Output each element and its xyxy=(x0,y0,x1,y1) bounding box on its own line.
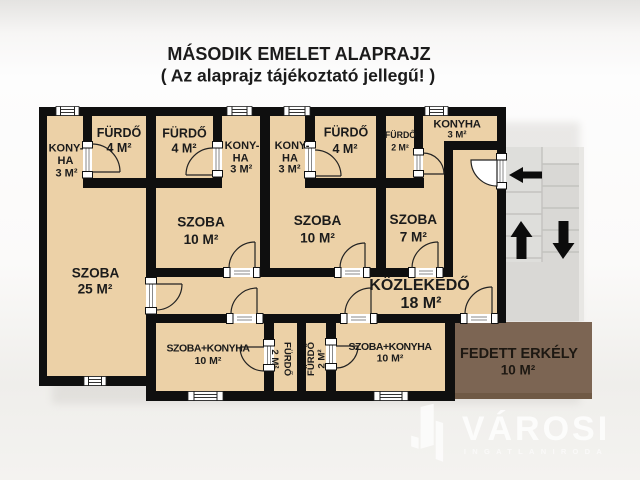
svg-text:SZOBA: SZOBA xyxy=(294,213,342,228)
svg-text:SZOBA: SZOBA xyxy=(390,212,438,227)
svg-text:KÖZLEKEDŐ: KÖZLEKEDŐ xyxy=(369,275,469,294)
svg-text:3 M²: 3 M² xyxy=(448,130,467,141)
svg-text:3 M²: 3 M² xyxy=(279,163,301,175)
svg-text:3 M²: 3 M² xyxy=(56,167,78,179)
svg-text:FÜRDŐ: FÜRDŐ xyxy=(282,342,294,377)
svg-text:SZOBA: SZOBA xyxy=(177,215,225,230)
svg-text:VÁROSI: VÁROSI xyxy=(462,410,610,448)
svg-text:FÜRDŐ: FÜRDŐ xyxy=(324,125,369,140)
svg-text:MÁSODIK EMELET ALAPRAJZ: MÁSODIK EMELET ALAPRAJZ xyxy=(167,43,430,64)
svg-text:FÜRDŐ: FÜRDŐ xyxy=(385,129,416,140)
svg-text:4 M²: 4 M² xyxy=(172,142,197,156)
svg-text:KONY-: KONY- xyxy=(225,140,260,152)
svg-text:7 M²: 7 M² xyxy=(400,230,428,245)
svg-text:25 M²: 25 M² xyxy=(78,282,113,297)
svg-text:2 M²: 2 M² xyxy=(391,142,409,152)
svg-text:KONYHA: KONYHA xyxy=(433,118,480,130)
svg-text:4 M²: 4 M² xyxy=(333,142,358,156)
svg-text:INGATLANIRODA: INGATLANIRODA xyxy=(464,447,608,456)
svg-text:10 M²: 10 M² xyxy=(195,355,222,367)
svg-text:FÜRDŐ: FÜRDŐ xyxy=(162,126,207,141)
svg-text:10 M²: 10 M² xyxy=(501,362,536,377)
svg-text:FÜRDŐ: FÜRDŐ xyxy=(97,125,142,140)
svg-text:SZOBA+KONYHA: SZOBA+KONYHA xyxy=(349,341,433,353)
svg-text:( Az alaprajz tájékoztató jell: ( Az alaprajz tájékoztató jellegű! ) xyxy=(161,66,436,86)
svg-text:18 M²: 18 M² xyxy=(401,295,442,312)
svg-text:2 M²: 2 M² xyxy=(269,349,280,368)
svg-text:FÜRDŐ: FÜRDŐ xyxy=(305,341,317,376)
svg-text:4 M²: 4 M² xyxy=(107,141,132,155)
svg-text:10 M²: 10 M² xyxy=(377,353,404,365)
svg-text:10 M²: 10 M² xyxy=(300,231,335,246)
svg-text:KONY-: KONY- xyxy=(49,143,84,155)
svg-text:2 M²: 2 M² xyxy=(317,349,328,368)
svg-text:10 M²: 10 M² xyxy=(184,232,219,247)
svg-text:SZOBA: SZOBA xyxy=(72,266,120,281)
svg-text:FEDETT ERKÉLY: FEDETT ERKÉLY xyxy=(460,345,578,362)
svg-text:HA: HA xyxy=(58,155,74,167)
svg-text:KONY-: KONY- xyxy=(275,140,310,152)
svg-text:SZOBA+KONYHA: SZOBA+KONYHA xyxy=(167,343,251,355)
svg-text:3 M²: 3 M² xyxy=(230,163,252,175)
